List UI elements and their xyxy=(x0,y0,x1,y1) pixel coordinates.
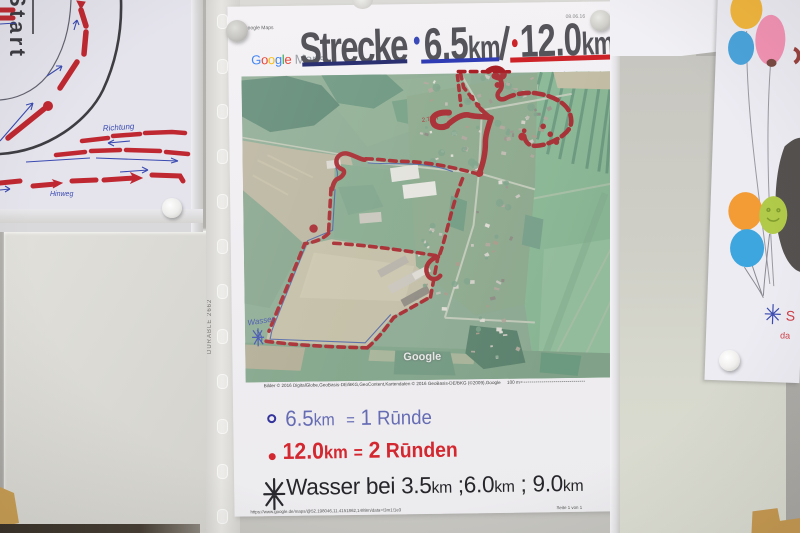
svg-text:Hinweg: Hinweg xyxy=(50,191,73,198)
svg-text:Richtung: Richtung xyxy=(103,122,136,133)
svg-text:da: da xyxy=(780,330,790,340)
svg-text:S: S xyxy=(785,308,795,324)
